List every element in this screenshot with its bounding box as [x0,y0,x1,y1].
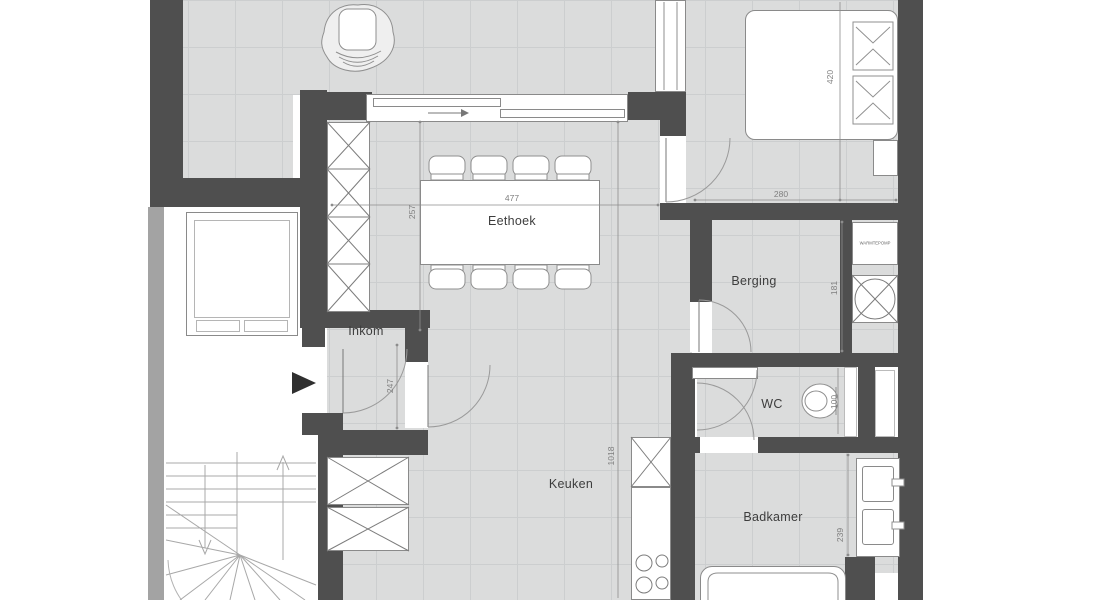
wall-left-pier [300,90,327,312]
room-label-badkamer: Badkamer [743,510,802,524]
wall-left-outer [150,0,183,207]
dim-badkamer-depth: 239 [835,528,845,542]
floor-plan: Eethoek Inkom Berging WC Keuken Badkamer… [0,0,1108,600]
staircase [166,452,316,600]
wall-nook-bottom [150,178,300,207]
wall-inkom-left-a [302,328,325,347]
sliding-door-panel-right [500,109,625,118]
room-label-eethoek: Eethoek [488,214,536,228]
wall-slider-left [300,92,372,120]
room-label-inkom: Inkom [348,324,384,338]
terrace-floor-lower [183,95,293,178]
wall-inkom-right [405,320,428,362]
wall-berging-left [690,220,712,302]
appliance-label-warmtepomp: WARMTEPOMP [860,241,891,246]
inkom-door-opening [405,362,428,428]
inkom-wardrobe-2 [327,507,409,551]
window-terrace-bedroom [655,0,686,92]
nightstand [873,140,898,176]
washing-machine [852,275,898,323]
wall-bedroom-left [660,90,686,136]
sink-1 [862,466,894,502]
berging-door-opening [690,302,712,352]
sliding-door-panel-left [373,98,501,107]
kitchen-tall-unit [631,437,671,487]
sink-2 [862,509,894,545]
duct-shaft-bad [875,573,898,600]
dining-cabinet [327,122,370,312]
wall-wc-right-stub [858,367,875,437]
badkamer-door-opening [700,437,758,453]
bedroom-door-opening [660,136,686,203]
bathtub [700,566,846,600]
dim-dining-depth: 257 [407,205,417,219]
wall-badkamer-jog [845,557,875,600]
entry-door-opening [302,347,325,413]
dim-bedroom-depth: 420 [825,70,835,84]
elevator-cabin [194,220,290,318]
dim-dining-width: 477 [505,193,519,203]
wall-niche [840,210,852,353]
dim-plan-length: 1018 [606,447,616,466]
inkom-wardrobe-1 [327,457,409,505]
side-band [148,207,164,600]
terrace-floor [183,0,660,95]
elevator-sill-right [244,320,288,332]
room-label-wc: WC [761,397,782,411]
wall-wc-top [690,353,923,367]
wall-bedroom-bottom [660,203,923,220]
wall-inkom-bottom [318,430,428,455]
dim-wc-width: 100 [829,395,839,409]
wall-right-outer [898,0,923,600]
dim-bedroom-width: 280 [774,189,788,199]
dim-berging-depth: 181 [829,281,839,295]
room-label-berging: Berging [731,274,776,288]
kitchen-counter [631,487,671,600]
wall-slider-right [628,92,662,120]
duct-shaft-wc [875,370,895,437]
dim-inkom-depth: 247 [385,379,395,393]
bed [745,10,898,140]
elevator-sill-left [196,320,240,332]
toilet-cistern [844,367,857,437]
room-label-keuken: Keuken [549,477,593,491]
wall-keuken-wc [671,353,695,600]
wc-door-slab [692,367,758,379]
